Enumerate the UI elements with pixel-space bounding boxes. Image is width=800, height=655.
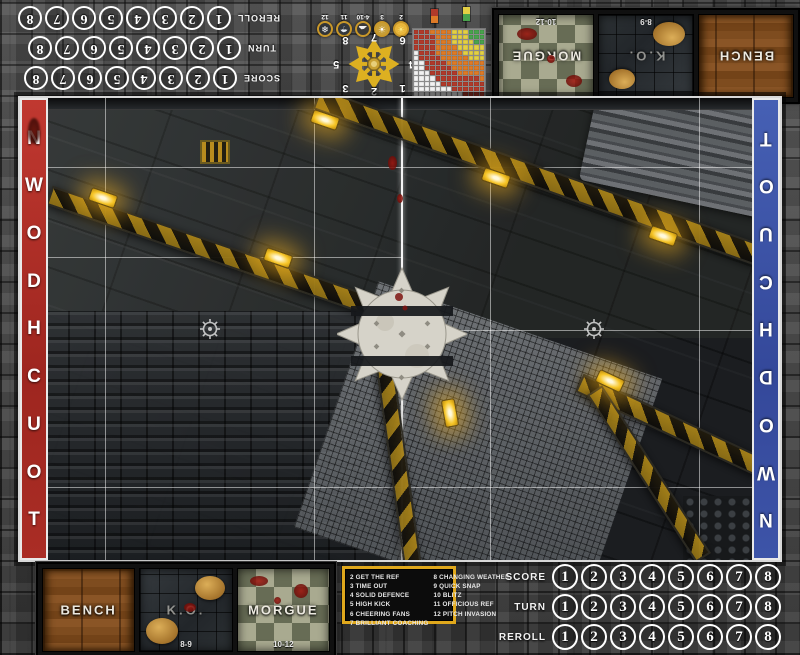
range-cell: [425, 66, 429, 70]
range-cell: [425, 35, 429, 39]
blood-splatter: [294, 584, 308, 598]
turn-number: 3: [163, 36, 187, 60]
range-cell: [469, 87, 473, 91]
score-number: 7: [726, 564, 752, 590]
range-cell: [452, 30, 456, 34]
range-cell: [447, 56, 451, 60]
reroll-number: 6: [697, 624, 723, 650]
player-tracks-block: SCORE 12345678 TURN 12345678 REROLL 1234…: [496, 564, 792, 650]
range-cell: [480, 35, 484, 39]
range-cell: [441, 87, 445, 91]
range-cell: [441, 71, 445, 75]
range-cell: [463, 71, 467, 75]
range-cell: [463, 40, 467, 44]
range-cell: [441, 30, 445, 34]
turn-track-circles: 12345678: [552, 594, 781, 620]
range-cell: [458, 71, 462, 75]
score-track-label: SCORE: [243, 73, 280, 83]
range-cell: [458, 82, 462, 86]
range-cell: [452, 56, 456, 60]
range-cell: [430, 51, 434, 55]
range-cell: [441, 51, 445, 55]
score-number: 6: [697, 564, 723, 590]
range-cell: [436, 82, 440, 86]
score-track: SCORE 12345678: [496, 564, 792, 590]
range-cell: [414, 30, 418, 34]
range-cell: [436, 87, 440, 91]
range-cell: [458, 30, 462, 34]
range-cell: [452, 35, 456, 39]
range-cell: [447, 40, 451, 44]
score-number: 3: [610, 564, 636, 590]
score-number: 5: [668, 564, 694, 590]
range-cell: [436, 66, 440, 70]
range-cell: [458, 56, 462, 60]
touchdown-letter: N: [759, 510, 773, 529]
turn-track: TURN 12345678: [496, 594, 792, 620]
range-cell: [436, 56, 440, 60]
range-cell: [441, 61, 445, 65]
range-cell: [430, 76, 434, 80]
range-cell: [419, 56, 423, 60]
morgue-label: MORGUE: [238, 603, 329, 618]
blood-splatter: [566, 75, 582, 87]
range-cell: [425, 45, 429, 49]
range-cell: [436, 71, 440, 75]
reroll-number: 7: [726, 624, 752, 650]
turn-number: 1: [552, 594, 578, 620]
morgue-label: MORGUE: [499, 49, 593, 64]
range-cell: [474, 40, 478, 44]
reroll-track-label: REROLL: [237, 13, 280, 23]
range-cell: [480, 71, 484, 75]
pitch-field: [48, 98, 752, 560]
score-track-label: SCORE: [496, 572, 546, 583]
range-cell: [452, 66, 456, 70]
center-field-emblem-icon: [337, 264, 467, 404]
range-cell: [419, 51, 423, 55]
scatter-number: 1: [400, 82, 406, 94]
range-cell: [441, 66, 445, 70]
score-number: 3: [159, 66, 183, 90]
range-cell: [469, 51, 473, 55]
range-cell: [430, 30, 434, 34]
range-cell: [474, 71, 478, 75]
dugout-morgue: MORGUE 10-12: [237, 568, 330, 652]
scatter-number: 3: [342, 82, 348, 94]
morgue-range-label: 10-12: [499, 17, 593, 26]
range-cell: [463, 30, 467, 34]
turn-track-label: TURN: [496, 602, 546, 613]
range-cell: [419, 82, 423, 86]
ko-label: K.O.: [599, 49, 693, 64]
range-cell: [480, 56, 484, 60]
turn-track-label: TURN: [247, 43, 280, 53]
touchdown-letter: T: [28, 510, 40, 529]
kickoff-entry: 2 GET THE REF: [350, 573, 429, 582]
legend-color: [463, 14, 470, 21]
score-number: 2: [581, 564, 607, 590]
score-number: 4: [132, 66, 156, 90]
reroll-number: 5: [99, 6, 123, 30]
range-cell: [436, 35, 440, 39]
range-cell: [458, 35, 462, 39]
dugout-bench: BENCH: [42, 568, 135, 652]
kickoff-entry: 7 BRILLIANT COACHING: [350, 619, 429, 628]
gear-marker-icon: [199, 318, 221, 340]
range-cell: [425, 87, 429, 91]
touchdown-right-label: TOUCHDOWN: [754, 100, 778, 558]
turn-number: 2: [190, 36, 214, 60]
range-cell: [463, 51, 467, 55]
range-cell: [430, 35, 434, 39]
scatter-template: 1 2 3 4 5 6 7 8: [332, 33, 416, 95]
metal-beam: [48, 98, 752, 110]
range-cell: [469, 40, 473, 44]
legend-color: [431, 9, 438, 16]
hatch-grate: [200, 140, 230, 164]
scatter-number: 6: [400, 34, 406, 46]
range-cell: [447, 35, 451, 39]
range-cell: [425, 51, 429, 55]
score-number: 5: [105, 66, 129, 90]
range-cell: [414, 40, 418, 44]
range-cell: [469, 30, 473, 34]
turn-number: 7: [726, 594, 752, 620]
kickoff-table: 2 GET THE REF3 TIME OUT4 SOLID DEFENCE5 …: [342, 566, 456, 624]
range-cell: [469, 45, 473, 49]
range-cell: [414, 76, 418, 80]
range-cell: [425, 56, 429, 60]
range-cell: [458, 61, 462, 65]
range-cell: [474, 56, 478, 60]
range-cell: [441, 35, 445, 39]
opponent-dugout: BENCH K.O. 8-9 MORGUE 10-12: [492, 8, 800, 104]
turn-number: 1: [217, 36, 241, 60]
range-cell: [447, 87, 451, 91]
range-cell: [463, 45, 467, 49]
bench-label: BENCH: [699, 49, 793, 64]
touchdown-letter: W: [757, 463, 775, 482]
weather-range: 4-10: [357, 13, 370, 20]
turn-number: 6: [697, 594, 723, 620]
range-cell: [414, 35, 418, 39]
range-cell: [474, 61, 478, 65]
hay-bale: [146, 618, 178, 644]
range-cell: [469, 71, 473, 75]
range-cell: [458, 51, 462, 55]
blood-splatter: [250, 576, 268, 586]
player-dugout: BENCH K.O. 8-9 MORGUE 10-12: [36, 562, 336, 655]
touchdown-zone-blue: TOUCHDOWN: [752, 98, 780, 560]
range-cell: [474, 35, 478, 39]
range-cell: [425, 61, 429, 65]
touchdown-letter: C: [27, 367, 41, 386]
range-cell: [419, 66, 423, 70]
touchdown-letter: O: [759, 176, 774, 195]
range-cell: [469, 61, 473, 65]
weather-range: 3: [380, 13, 384, 20]
range-cell: [414, 61, 418, 65]
score-track-circles: 12345678: [552, 564, 781, 590]
range-cell: [419, 76, 423, 80]
pitch: TOUCHDOWN TOUCHDOWN: [18, 96, 782, 562]
touchdown-letter: T: [760, 129, 772, 148]
range-cell: [458, 40, 462, 44]
reroll-number: 1: [207, 6, 231, 30]
reroll-number: 8: [755, 624, 781, 650]
dugout-morgue: MORGUE 10-12: [498, 14, 594, 98]
reroll-number: 3: [610, 624, 636, 650]
hay-bale: [653, 22, 685, 46]
turn-number: 4: [639, 594, 665, 620]
range-cell: [436, 45, 440, 49]
range-cell: [480, 61, 484, 65]
range-cell: [414, 82, 418, 86]
range-cell: [469, 56, 473, 60]
weather-item: ❄ 12: [317, 5, 333, 37]
range-cell: [469, 82, 473, 86]
range-cell: [447, 61, 451, 65]
dugout-ko: K.O. 8-9: [598, 14, 694, 98]
range-cell: [469, 76, 473, 80]
range-cell: [430, 66, 434, 70]
range-cell: [452, 87, 456, 91]
range-cell: [452, 71, 456, 75]
range-cell: [425, 76, 429, 80]
turn-number: 2: [581, 594, 607, 620]
kickoff-column-left: 2 GET THE REF3 TIME OUT4 SOLID DEFENCE5 …: [350, 573, 429, 617]
score-number: 7: [51, 66, 75, 90]
range-cell: [414, 51, 418, 55]
reroll-track-label: REROLL: [496, 632, 546, 643]
turn-number: 8: [755, 594, 781, 620]
score-track: SCORE 12345678: [28, 66, 280, 90]
blood-splatter: [388, 156, 397, 170]
range-cell: [419, 30, 423, 34]
range-cell: [480, 87, 484, 91]
range-cell: [414, 56, 418, 60]
reroll-number: 2: [581, 624, 607, 650]
range-cell: [463, 66, 467, 70]
turn-number: 3: [610, 594, 636, 620]
range-legend-swatch: [462, 6, 471, 22]
range-cell: [436, 51, 440, 55]
turn-number: 7: [55, 36, 79, 60]
turn-number: 6: [82, 36, 106, 60]
range-cell: [441, 56, 445, 60]
scatter-number: 8: [342, 34, 348, 46]
dugout-bench: BENCH: [698, 14, 794, 98]
reroll-number: 5: [668, 624, 694, 650]
reroll-number: 4: [126, 6, 150, 30]
range-cell: [463, 35, 467, 39]
range-cell: [414, 71, 418, 75]
range-cell: [436, 30, 440, 34]
score-track-circles: 12345678: [24, 66, 237, 90]
reroll-number: 3: [153, 6, 177, 30]
range-cell: [452, 51, 456, 55]
snow-icon: ❄: [317, 21, 333, 37]
pass-range-chart: [412, 28, 486, 98]
range-cell: [480, 66, 484, 70]
scatter-arrows-icon: [348, 38, 400, 90]
score-number: 6: [78, 66, 102, 90]
range-cell: [480, 45, 484, 49]
reroll-number: 1: [552, 624, 578, 650]
range-cell: [480, 76, 484, 80]
range-cell: [452, 61, 456, 65]
range-cell: [430, 87, 434, 91]
weather-range: 11: [341, 13, 348, 20]
range-cell: [419, 61, 423, 65]
reroll-number: 6: [72, 6, 96, 30]
range-cell: [469, 35, 473, 39]
range-cell: [447, 30, 451, 34]
range-cell: [469, 66, 473, 70]
range-cell: [425, 30, 429, 34]
touchdown-letter: U: [27, 415, 41, 434]
weather-range: 12: [321, 13, 328, 20]
range-cell: [452, 40, 456, 44]
range-cell: [441, 82, 445, 86]
turn-number: 5: [668, 594, 694, 620]
range-cell: [441, 40, 445, 44]
wide-zone-line: [48, 167, 752, 168]
kickoff-entry: 6 CHEERING FANS: [350, 610, 429, 619]
range-cell: [430, 45, 434, 49]
kickoff-entry: 5 HIGH KICK: [350, 600, 429, 609]
range-cell: [425, 71, 429, 75]
range-cell: [430, 82, 434, 86]
range-cell: [474, 30, 478, 34]
scatter-number: 5: [333, 58, 339, 70]
range-cell: [463, 76, 467, 80]
reroll-track: REROLL 12345678: [496, 624, 792, 650]
range-cell: [425, 82, 429, 86]
turn-track: TURN 12345678: [28, 36, 280, 60]
range-cell: [474, 66, 478, 70]
range-cell: [474, 76, 478, 80]
range-cell: [447, 66, 451, 70]
turn-number: 8: [28, 36, 52, 60]
hay-bale: [609, 69, 635, 89]
reroll-number: 2: [180, 6, 204, 30]
range-cell: [441, 76, 445, 80]
range-cell: [419, 35, 423, 39]
touchdown-letter: U: [759, 224, 773, 243]
touchdown-letter: O: [27, 463, 42, 482]
legend-color: [431, 16, 438, 23]
range-cell: [419, 40, 423, 44]
reroll-track: REROLL 12345678: [28, 6, 280, 30]
game-mat: SCORE 12345678 TURN 12345678 REROLL 1234…: [0, 0, 800, 655]
touchdown-letter: O: [27, 224, 42, 243]
range-cell: [458, 87, 462, 91]
touchdown-left-label: TOUCHDOWN: [22, 100, 46, 558]
blood-splatter: [28, 118, 40, 144]
weather-glyph: ❄: [321, 25, 329, 34]
weather-range: 2: [399, 13, 403, 20]
turn-track-circles: 12345678: [28, 36, 241, 60]
touchdown-letter: D: [27, 272, 41, 291]
morgue-range-label: 10-12: [238, 640, 329, 649]
range-cell: [480, 40, 484, 44]
range-cell: [474, 87, 478, 91]
range-cell: [463, 61, 467, 65]
range-cell: [447, 51, 451, 55]
turn-number: 4: [136, 36, 160, 60]
blood-splatter: [274, 597, 281, 604]
range-cell: [436, 76, 440, 80]
range-cell: [414, 87, 418, 91]
range-cell: [447, 82, 451, 86]
score-number: 1: [213, 66, 237, 90]
range-cell: [419, 71, 423, 75]
bench-label: BENCH: [43, 603, 134, 618]
blood-splatter: [397, 194, 403, 203]
range-cell: [463, 56, 467, 60]
touchdown-letter: O: [759, 415, 774, 434]
range-cell: [425, 40, 429, 44]
range-cell: [430, 71, 434, 75]
reroll-number: 4: [639, 624, 665, 650]
reroll-number: 7: [45, 6, 69, 30]
blood-splatter: [517, 28, 537, 40]
range-cell: [419, 45, 423, 49]
kickoff-entry: 3 TIME OUT: [350, 582, 429, 591]
range-cell: [458, 45, 462, 49]
range-cell: [436, 61, 440, 65]
range-cell: [436, 40, 440, 44]
range-cell: [463, 87, 467, 91]
range-legend-swatch: [430, 8, 439, 24]
reroll-track-circles: 12345678: [552, 624, 781, 650]
range-cell: [480, 51, 484, 55]
touchdown-letter: D: [759, 367, 773, 386]
reroll-number: 8: [18, 6, 42, 30]
hay-bale: [195, 576, 225, 600]
range-cell: [419, 87, 423, 91]
score-number: 2: [186, 66, 210, 90]
range-cell: [463, 82, 467, 86]
turn-number: 5: [109, 36, 133, 60]
dugout-ko: K.O. 8-9: [139, 568, 232, 652]
touchdown-zone-red: TOUCHDOWN: [20, 98, 48, 560]
range-cell: [458, 76, 462, 80]
legend-color: [463, 7, 470, 14]
score-number: 8: [755, 564, 781, 590]
score-number: 4: [639, 564, 665, 590]
range-cell: [430, 61, 434, 65]
kickoff-entry: 4 SOLID DEFENCE: [350, 591, 429, 600]
gear-marker-icon: [583, 318, 605, 340]
range-cell: [430, 56, 434, 60]
range-cell: [452, 82, 456, 86]
range-cell: [480, 30, 484, 34]
score-number: 1: [552, 564, 578, 590]
touchdown-letter: C: [759, 272, 773, 291]
touchdown-letter: H: [27, 319, 41, 338]
scatter-number: 7: [371, 31, 377, 43]
range-cell: [480, 82, 484, 86]
touchdown-letter: H: [759, 319, 773, 338]
blood-splatter: [547, 55, 555, 63]
range-cell: [474, 51, 478, 55]
range-cell: [452, 76, 456, 80]
range-cell: [458, 66, 462, 70]
range-cell: [441, 45, 445, 49]
